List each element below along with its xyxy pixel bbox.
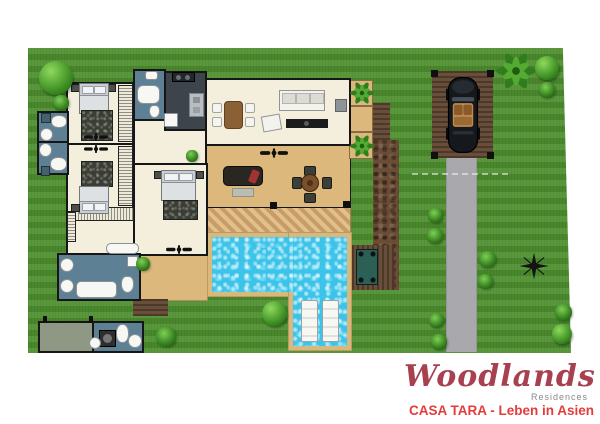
nightstand bbox=[196, 171, 204, 179]
laundry-basin bbox=[89, 337, 101, 349]
branding-block: Woodlands Residences CASA TARA - Leben i… bbox=[404, 362, 594, 418]
bed bbox=[161, 170, 196, 201]
sofa-cushion bbox=[296, 93, 310, 104]
bed-pillow bbox=[82, 203, 95, 211]
bed-blanket bbox=[162, 182, 195, 200]
bush-icon bbox=[156, 327, 176, 347]
terrace-post bbox=[343, 201, 350, 208]
burner bbox=[176, 75, 181, 80]
indoor-plant-icon bbox=[186, 150, 198, 162]
outbuilding-door bbox=[89, 316, 93, 323]
site-plan-page: Woodlands Residences CASA TARA - Leben i… bbox=[0, 0, 600, 424]
stove bbox=[172, 72, 195, 82]
dining-table bbox=[224, 101, 243, 129]
terrace-chair bbox=[322, 177, 332, 189]
bed-pillow bbox=[94, 86, 107, 94]
outbuilding-door bbox=[43, 316, 47, 323]
washing-machine bbox=[99, 330, 116, 347]
bathtub bbox=[50, 157, 67, 171]
bed-pillow bbox=[179, 173, 194, 181]
dining-chair bbox=[212, 117, 222, 127]
nightstand bbox=[71, 204, 80, 212]
toilet bbox=[121, 276, 134, 293]
bush-icon bbox=[136, 257, 150, 271]
armchair bbox=[261, 113, 282, 132]
bed-pillow bbox=[82, 86, 95, 94]
toilet-tank bbox=[41, 166, 50, 176]
bush-icon bbox=[479, 251, 496, 268]
sink bbox=[39, 143, 52, 157]
plan-caption: CASA TARA - Leben in Asien bbox=[404, 404, 594, 418]
round-table bbox=[301, 174, 319, 192]
bush-icon bbox=[555, 304, 572, 321]
bush-icon bbox=[431, 334, 447, 350]
bed-pillow bbox=[164, 173, 179, 181]
palm-plant-icon bbox=[347, 78, 377, 108]
toilet bbox=[149, 105, 160, 118]
bathtub bbox=[137, 85, 160, 104]
carport-post bbox=[487, 152, 494, 159]
compass-rose-icon bbox=[518, 252, 550, 280]
entry-landing bbox=[349, 106, 373, 132]
wardrobe bbox=[118, 85, 133, 142]
island-sink bbox=[193, 97, 200, 103]
logo-residences: Residences bbox=[404, 393, 594, 402]
bathtub bbox=[51, 115, 67, 128]
wardrobe bbox=[118, 146, 133, 206]
bush-icon bbox=[427, 228, 443, 244]
carport-post bbox=[487, 70, 494, 77]
ceiling-fan-icon bbox=[260, 148, 288, 158]
dining-chair bbox=[245, 103, 255, 113]
pool-bench bbox=[356, 249, 378, 285]
terrace-mat bbox=[232, 188, 254, 197]
bed-blanket bbox=[80, 187, 108, 202]
toilet-tank bbox=[41, 113, 51, 123]
ceiling-fan-icon bbox=[84, 133, 108, 141]
storage-room bbox=[38, 321, 94, 353]
kitchen-cabinet bbox=[164, 113, 178, 127]
dining-chair bbox=[245, 117, 255, 127]
sofa bbox=[279, 90, 325, 111]
console-detail bbox=[304, 121, 309, 126]
island-hob bbox=[193, 107, 200, 113]
sofa-cushion bbox=[310, 93, 324, 104]
laundry-basin bbox=[128, 334, 142, 348]
daybed bbox=[223, 166, 263, 186]
terrace-post bbox=[270, 202, 277, 209]
table-center bbox=[307, 180, 313, 186]
rug bbox=[81, 161, 113, 187]
kitchen-island bbox=[189, 93, 204, 117]
ceiling-fan-icon bbox=[84, 145, 108, 153]
daybed-pillow bbox=[248, 169, 260, 184]
sun-lounger bbox=[301, 300, 318, 342]
rug bbox=[163, 200, 198, 220]
property-dash-line bbox=[412, 173, 508, 175]
burner bbox=[185, 75, 190, 80]
tv-console bbox=[286, 119, 328, 128]
washer-drum bbox=[103, 334, 112, 343]
bush-icon bbox=[539, 82, 555, 98]
sun-lounger bbox=[322, 300, 339, 342]
sink bbox=[145, 71, 158, 80]
bush-icon bbox=[429, 313, 444, 328]
south-steps bbox=[133, 299, 168, 316]
bush-icon bbox=[428, 208, 443, 223]
tree-icon bbox=[535, 56, 559, 80]
bush-icon bbox=[478, 274, 493, 289]
tree-icon bbox=[552, 324, 572, 344]
bed bbox=[79, 186, 109, 214]
car-icon bbox=[446, 76, 480, 154]
bush-icon bbox=[53, 95, 69, 111]
side-table bbox=[335, 99, 347, 112]
sink bbox=[40, 128, 53, 141]
dining-chair bbox=[212, 103, 222, 113]
tree-icon bbox=[262, 301, 287, 326]
palm-plant-icon bbox=[347, 131, 377, 161]
ceiling-fan-icon bbox=[166, 245, 192, 254]
sink bbox=[60, 258, 74, 272]
carport-post bbox=[431, 152, 438, 159]
palm-tree-icon bbox=[494, 49, 538, 93]
tree-icon bbox=[39, 61, 73, 95]
sink bbox=[60, 279, 74, 293]
driveway bbox=[446, 156, 477, 352]
sofa-cushion bbox=[282, 93, 296, 104]
bathtub bbox=[76, 281, 117, 298]
bed-pillow bbox=[94, 203, 107, 211]
vanity-counter bbox=[106, 243, 139, 254]
terrace-chair bbox=[304, 193, 316, 203]
carport-post bbox=[431, 70, 438, 77]
wardrobe bbox=[67, 212, 76, 242]
logo-woodlands: Woodlands bbox=[404, 362, 594, 392]
